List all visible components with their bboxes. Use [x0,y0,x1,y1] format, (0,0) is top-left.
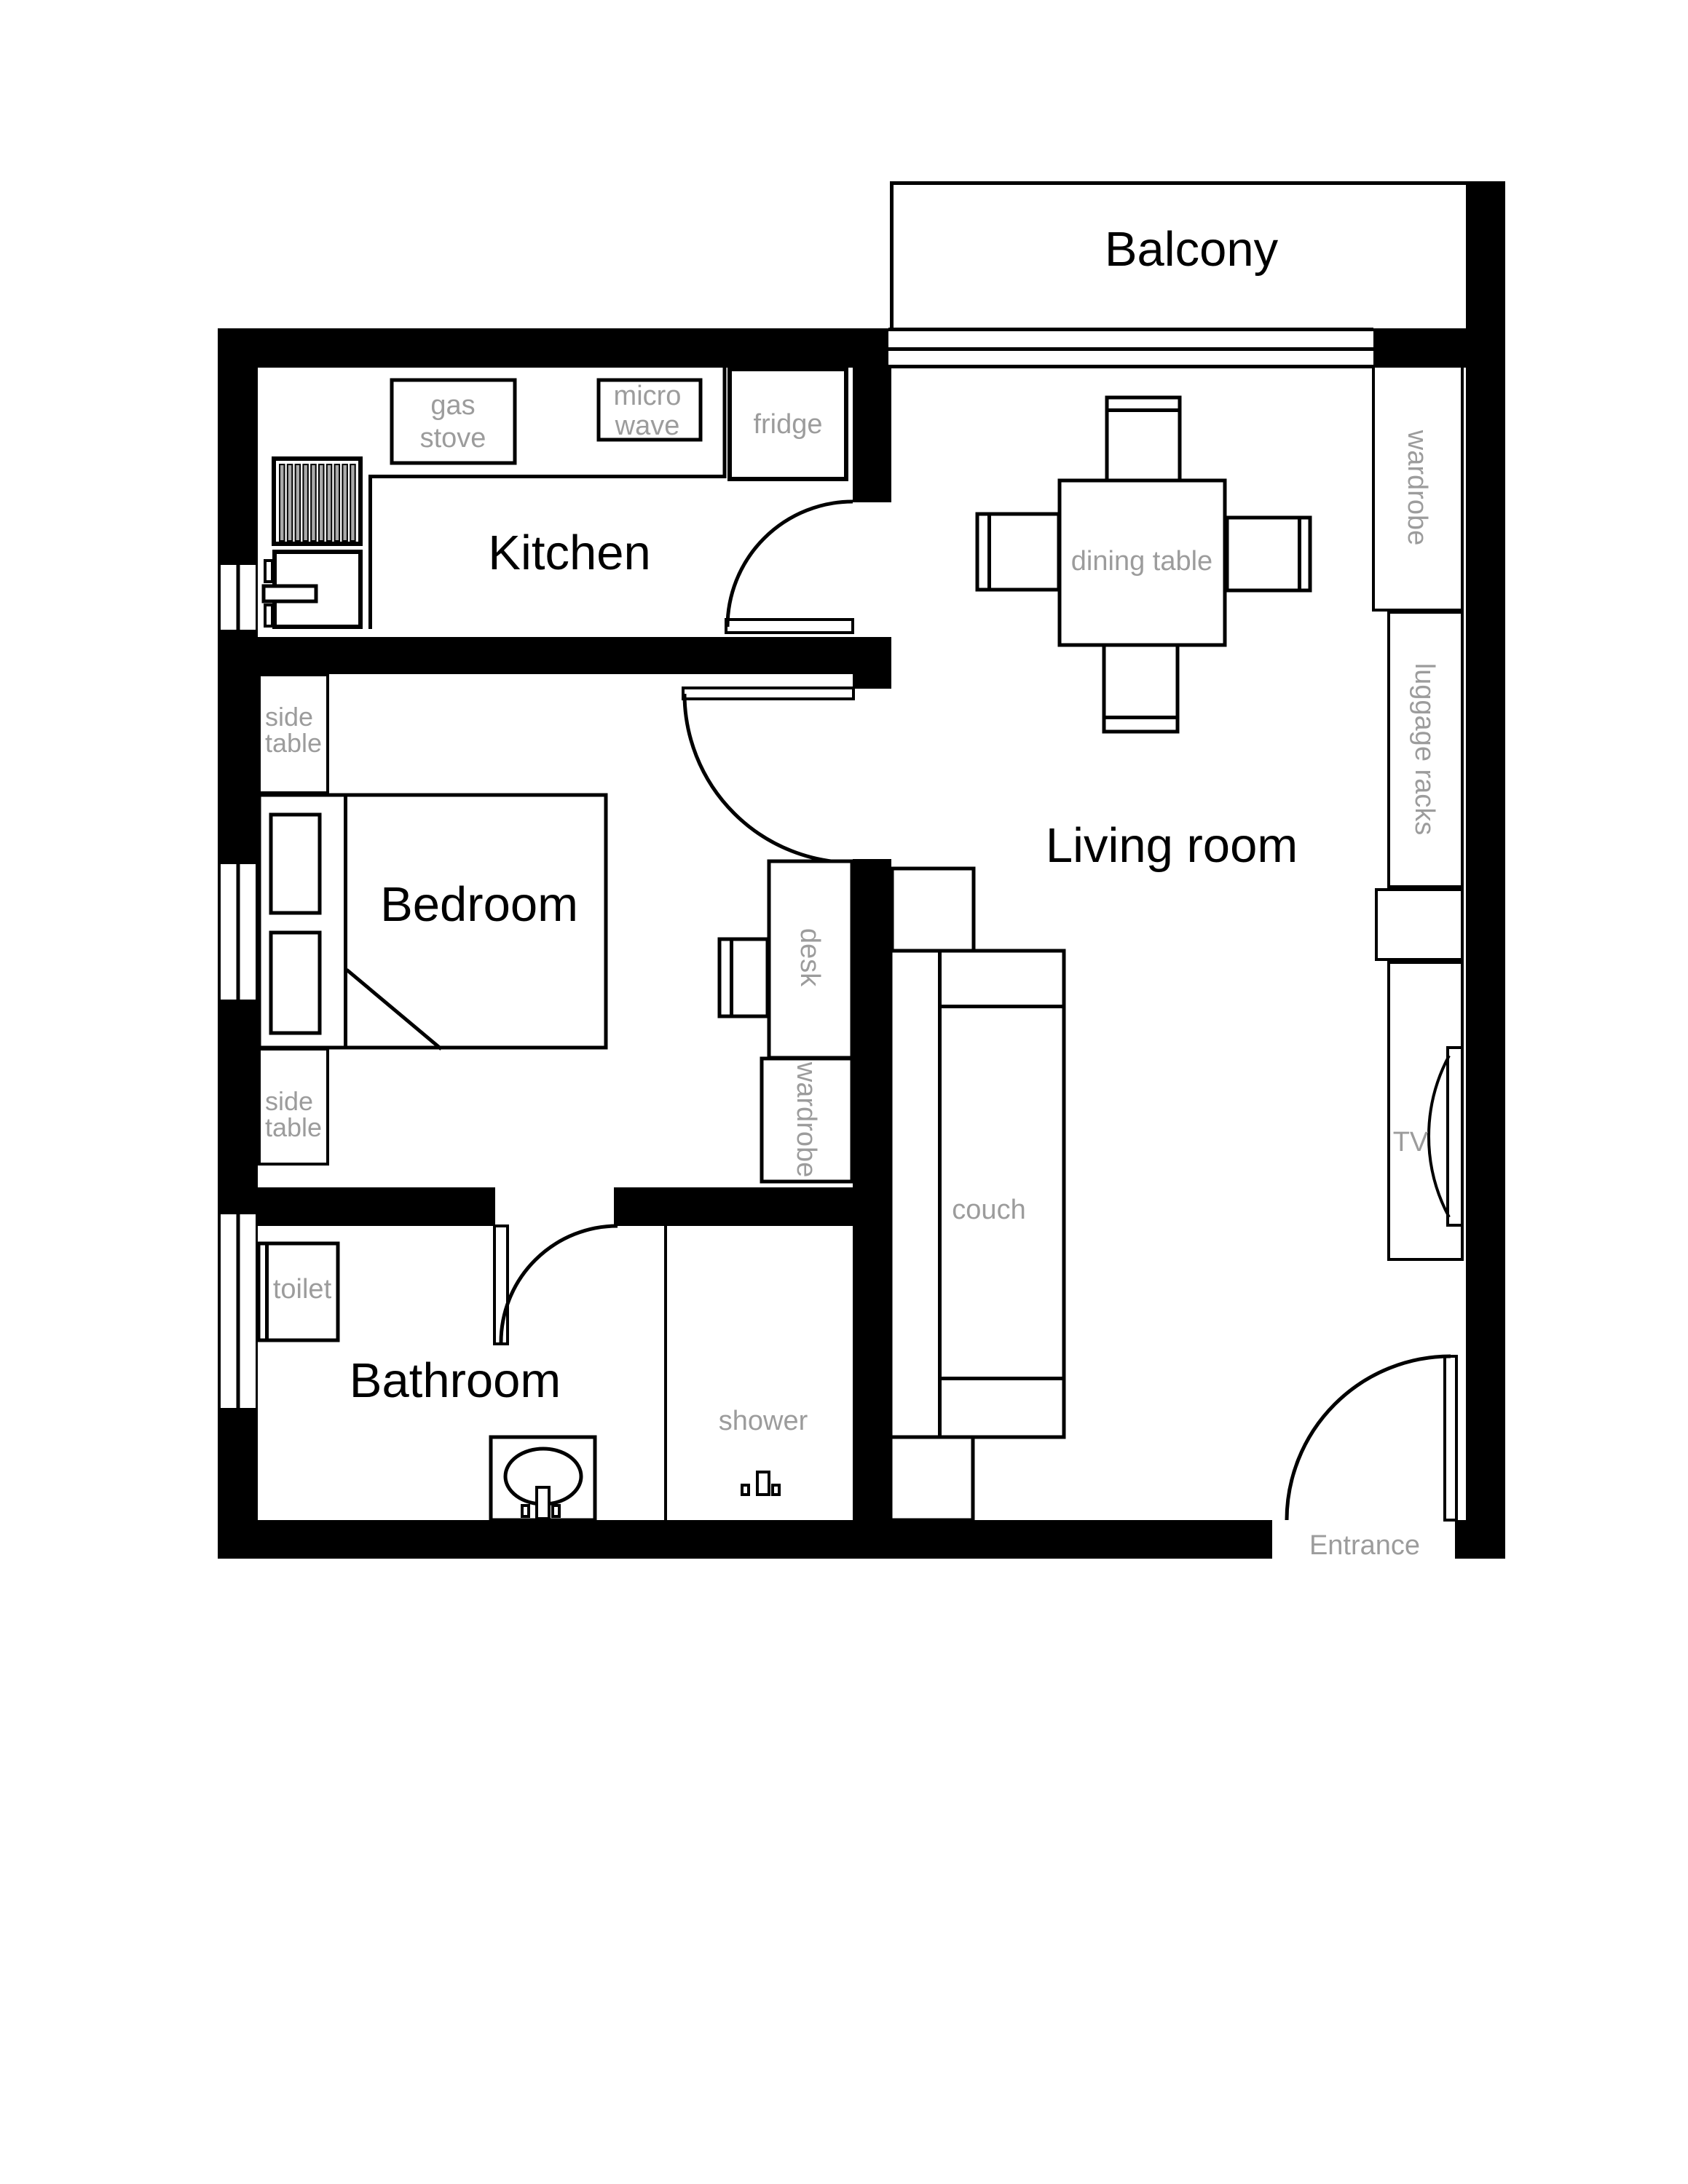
svg-text:table: table [265,1112,322,1142]
svg-text:gas: gas [430,390,475,421]
svg-text:shower: shower [719,1406,808,1436]
svg-text:Entrance: Entrance [1309,1530,1420,1561]
svg-text:toilet: toilet [273,1274,332,1305]
svg-text:couch: couch [952,1195,1025,1225]
svg-text:micro: micro [614,381,682,411]
svg-text:Balcony: Balcony [1105,222,1279,277]
svg-text:wardrobe: wardrobe [1402,430,1432,545]
svg-text:TV: TV [1393,1127,1429,1158]
svg-text:Kitchen: Kitchen [488,526,650,580]
svg-text:desk: desk [794,928,825,987]
svg-text:wave: wave [615,411,680,441]
svg-text:stove: stove [420,423,486,454]
svg-text:Bedroom: Bedroom [380,877,578,932]
svg-text:wardrobe: wardrobe [791,1061,821,1177]
svg-text:dining table: dining table [1071,546,1212,577]
svg-text:side: side [265,702,313,732]
svg-text:table: table [265,728,322,758]
svg-text:Living room: Living room [1046,818,1298,873]
svg-text:side: side [265,1086,313,1116]
svg-text:luggage racks: luggage racks [1409,663,1440,836]
svg-text:Bathroom: Bathroom [350,1353,561,1408]
svg-text:fridge: fridge [753,409,822,440]
